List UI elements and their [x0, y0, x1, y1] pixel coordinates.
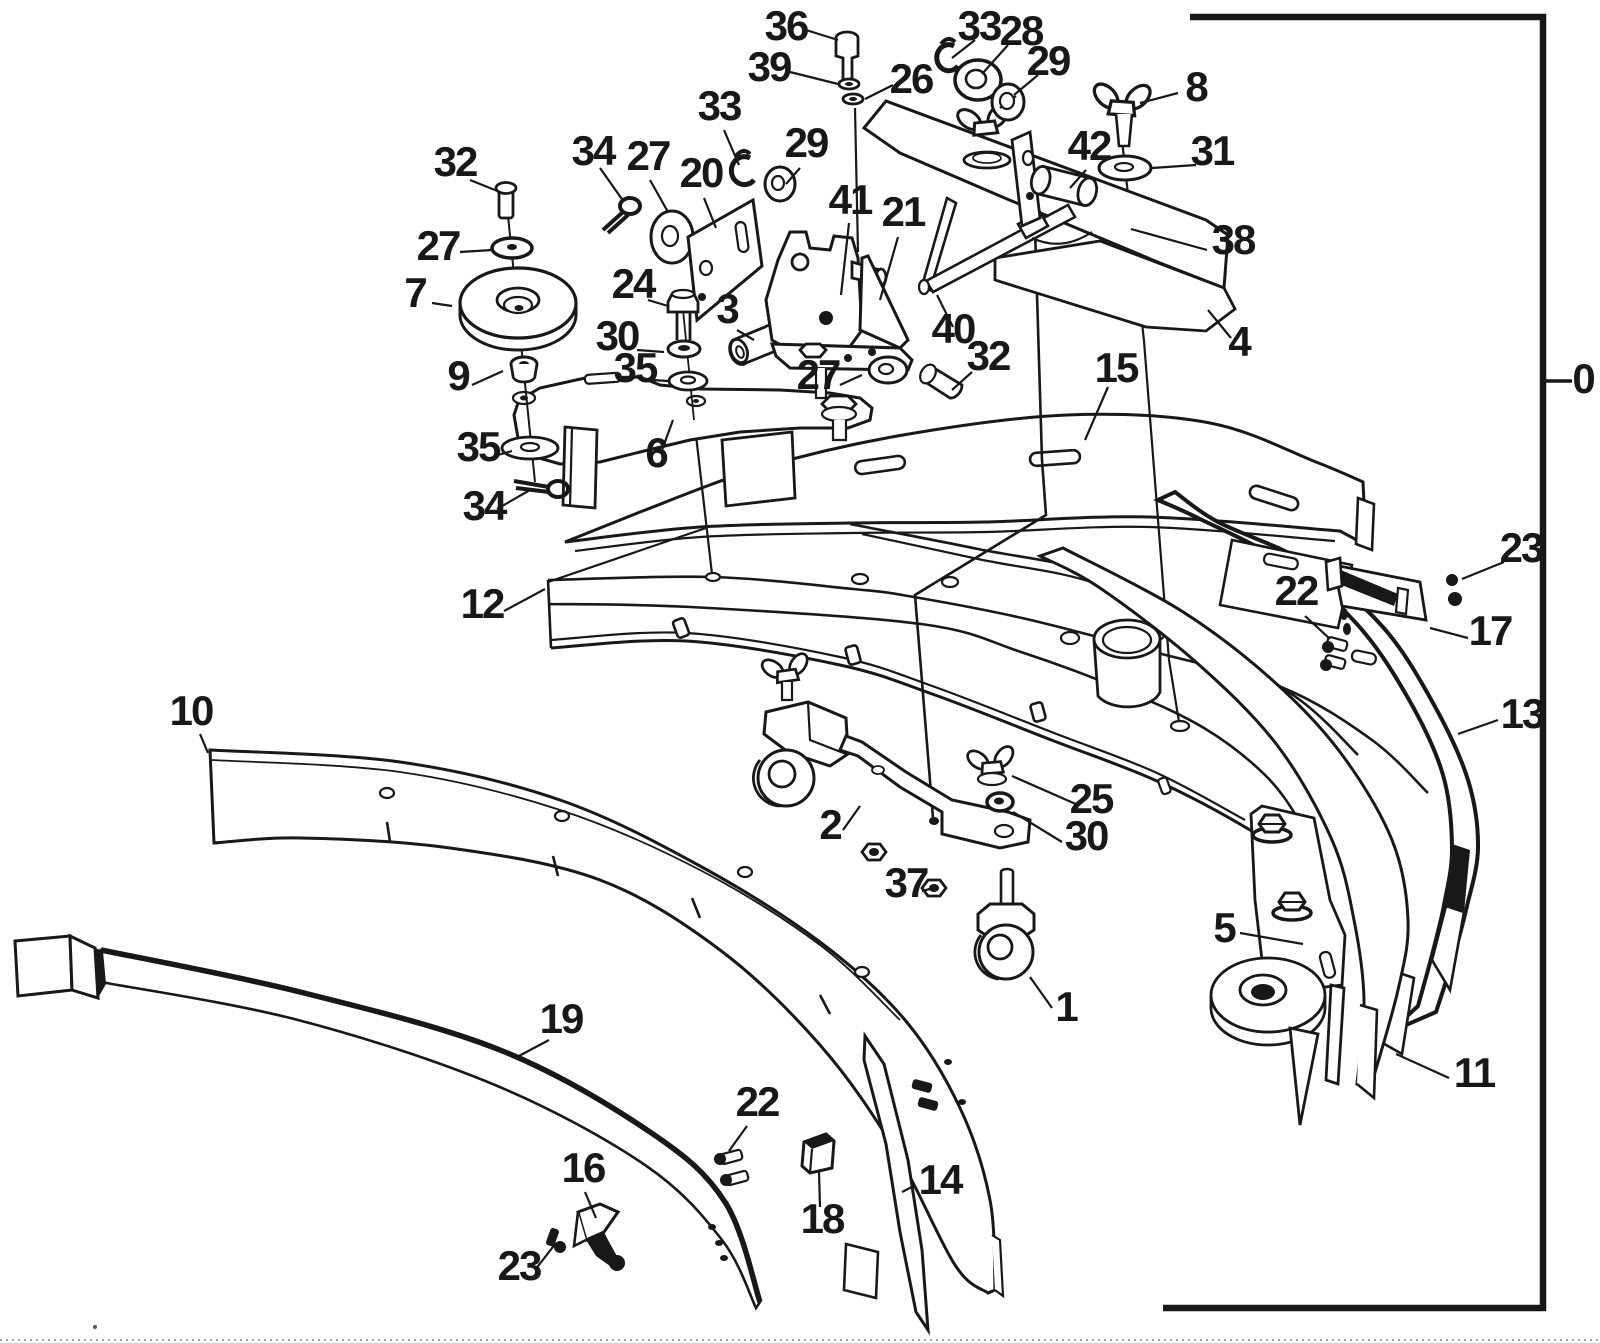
svg-text:34: 34 [572, 127, 617, 174]
svg-text:1: 1 [1055, 983, 1078, 1030]
svg-text:11: 11 [1454, 1049, 1496, 1096]
svg-text:18: 18 [801, 1195, 845, 1242]
svg-text:30: 30 [1065, 812, 1108, 859]
svg-text:12: 12 [461, 580, 504, 627]
svg-text:7: 7 [404, 269, 426, 316]
svg-text:4: 4 [1228, 318, 1252, 365]
svg-text:21: 21 [882, 188, 926, 235]
svg-text:16: 16 [562, 1144, 605, 1191]
svg-text:33: 33 [698, 82, 741, 129]
svg-text:9: 9 [447, 352, 469, 399]
svg-text:10: 10 [170, 687, 213, 734]
svg-text:35: 35 [457, 423, 501, 470]
svg-text:33: 33 [958, 2, 1001, 49]
svg-text:37: 37 [885, 859, 928, 906]
svg-text:8: 8 [1185, 63, 1208, 110]
svg-text:27: 27 [797, 351, 840, 398]
svg-text:2: 2 [819, 801, 841, 848]
svg-text:40: 40 [932, 305, 975, 352]
svg-text:6: 6 [645, 429, 667, 476]
svg-text:26: 26 [890, 55, 933, 102]
svg-text:23: 23 [1500, 524, 1543, 571]
svg-text:5: 5 [1213, 904, 1236, 951]
svg-text:35: 35 [614, 344, 658, 391]
svg-text:13: 13 [1501, 690, 1544, 737]
svg-text:15: 15 [1095, 344, 1139, 391]
svg-text:38: 38 [1212, 216, 1256, 263]
svg-text:22: 22 [736, 1078, 779, 1125]
svg-text:27: 27 [627, 132, 670, 179]
svg-text:34: 34 [463, 482, 508, 529]
svg-text:42: 42 [1068, 122, 1111, 169]
svg-text:36: 36 [765, 2, 808, 49]
svg-text:20: 20 [680, 149, 723, 196]
svg-text:27: 27 [417, 222, 460, 269]
svg-text:22: 22 [1275, 567, 1318, 614]
svg-text:0: 0 [1572, 355, 1594, 402]
svg-text:14: 14 [919, 1156, 964, 1203]
svg-text:39: 39 [748, 43, 791, 90]
svg-text:29: 29 [1027, 37, 1070, 84]
svg-text:29: 29 [785, 119, 828, 166]
svg-text:24: 24 [612, 260, 657, 307]
svg-text:3: 3 [716, 285, 738, 332]
svg-text:19: 19 [540, 995, 583, 1042]
svg-text:32: 32 [434, 138, 477, 185]
svg-text:41: 41 [829, 176, 873, 223]
svg-text:23: 23 [498, 1242, 541, 1289]
svg-text:31: 31 [1191, 127, 1235, 174]
svg-text:17: 17 [1469, 607, 1512, 654]
